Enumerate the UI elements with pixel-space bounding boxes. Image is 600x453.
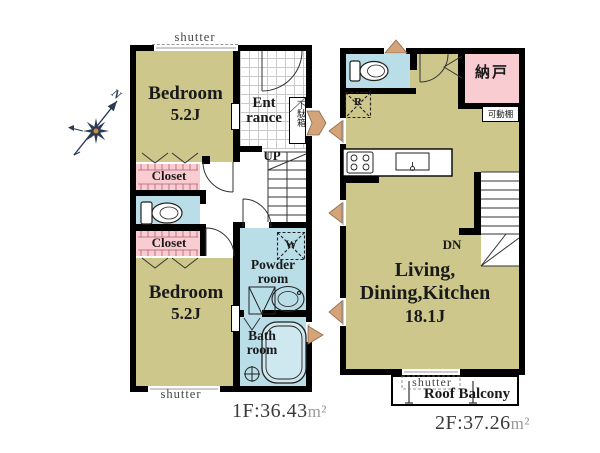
shoe-cabinet-box: 下駄箱 (289, 97, 306, 144)
movable-shelf-label: 可動棚 (483, 107, 518, 121)
roof-balcony-label: Roof Balcony (418, 387, 516, 403)
ldk-label-1: Living, (352, 260, 498, 281)
dn-label: DN (438, 238, 466, 252)
powder-label-2: room (238, 272, 308, 286)
wall (202, 156, 210, 164)
floor1-area-unit: m² (308, 402, 327, 421)
window (340, 118, 346, 144)
entrance-label-2: rance (240, 111, 288, 127)
wall (410, 54, 417, 70)
movable-shelf-box: 可動棚 (482, 106, 519, 122)
floor2-area-value: 2F:37.26 (435, 412, 511, 434)
window (340, 200, 346, 226)
shoe-cabinet-label: 下駄箱 (290, 100, 305, 127)
wall (240, 222, 245, 228)
floor1-toilet-room (136, 196, 200, 224)
floor1-area-value: 1F:36.43 (232, 400, 308, 422)
bath-window (306, 322, 312, 342)
window (340, 298, 346, 326)
bedroom2-size: 5.2J (136, 305, 236, 323)
wall (459, 228, 481, 235)
bedroom2-name: Bedroom (136, 283, 236, 303)
bath-label-2: room (236, 343, 288, 357)
floor1-area-label: 1F:36.43m² (222, 401, 337, 422)
floor2-area-label: 2F:37.26m² (425, 413, 540, 434)
wall (346, 88, 416, 94)
up-label: UP (257, 149, 287, 163)
window (384, 48, 406, 54)
bedroom1-size: 5.2J (138, 106, 233, 124)
shutter-dash-top (152, 44, 238, 45)
closet2-label: Closet (138, 236, 200, 250)
floor2-area-unit: m² (511, 414, 530, 433)
ldk-label-2: Dining,Kitchen (352, 283, 498, 304)
wall (136, 190, 206, 196)
wall (474, 172, 481, 234)
compass-north-label: N (109, 87, 124, 102)
floor2-toilet-room (346, 54, 410, 88)
fridge-label: R (345, 97, 371, 109)
window-shutter-top (154, 45, 238, 51)
shutter-label-bottom: shutter (146, 388, 216, 401)
front-door-opening (306, 108, 312, 136)
wall (200, 190, 206, 204)
wall (269, 222, 306, 228)
wall (458, 54, 465, 103)
wall (233, 222, 240, 386)
compass-icon (68, 101, 117, 155)
storage-label: 納戸 (468, 66, 516, 82)
ldk-label-3: 18.1J (352, 307, 498, 326)
floor2-stairwell (481, 172, 519, 266)
wall (240, 310, 244, 317)
shutter-label-top: shutter (150, 31, 240, 44)
wall (341, 176, 379, 183)
washer-label: W (277, 238, 305, 251)
wall (262, 310, 306, 317)
bedroom1-name: Bedroom (138, 84, 233, 104)
wall (136, 224, 206, 231)
floorplan-canvas: 下駄箱 可動棚 (0, 0, 600, 453)
closet1-label: Closet (138, 169, 200, 183)
